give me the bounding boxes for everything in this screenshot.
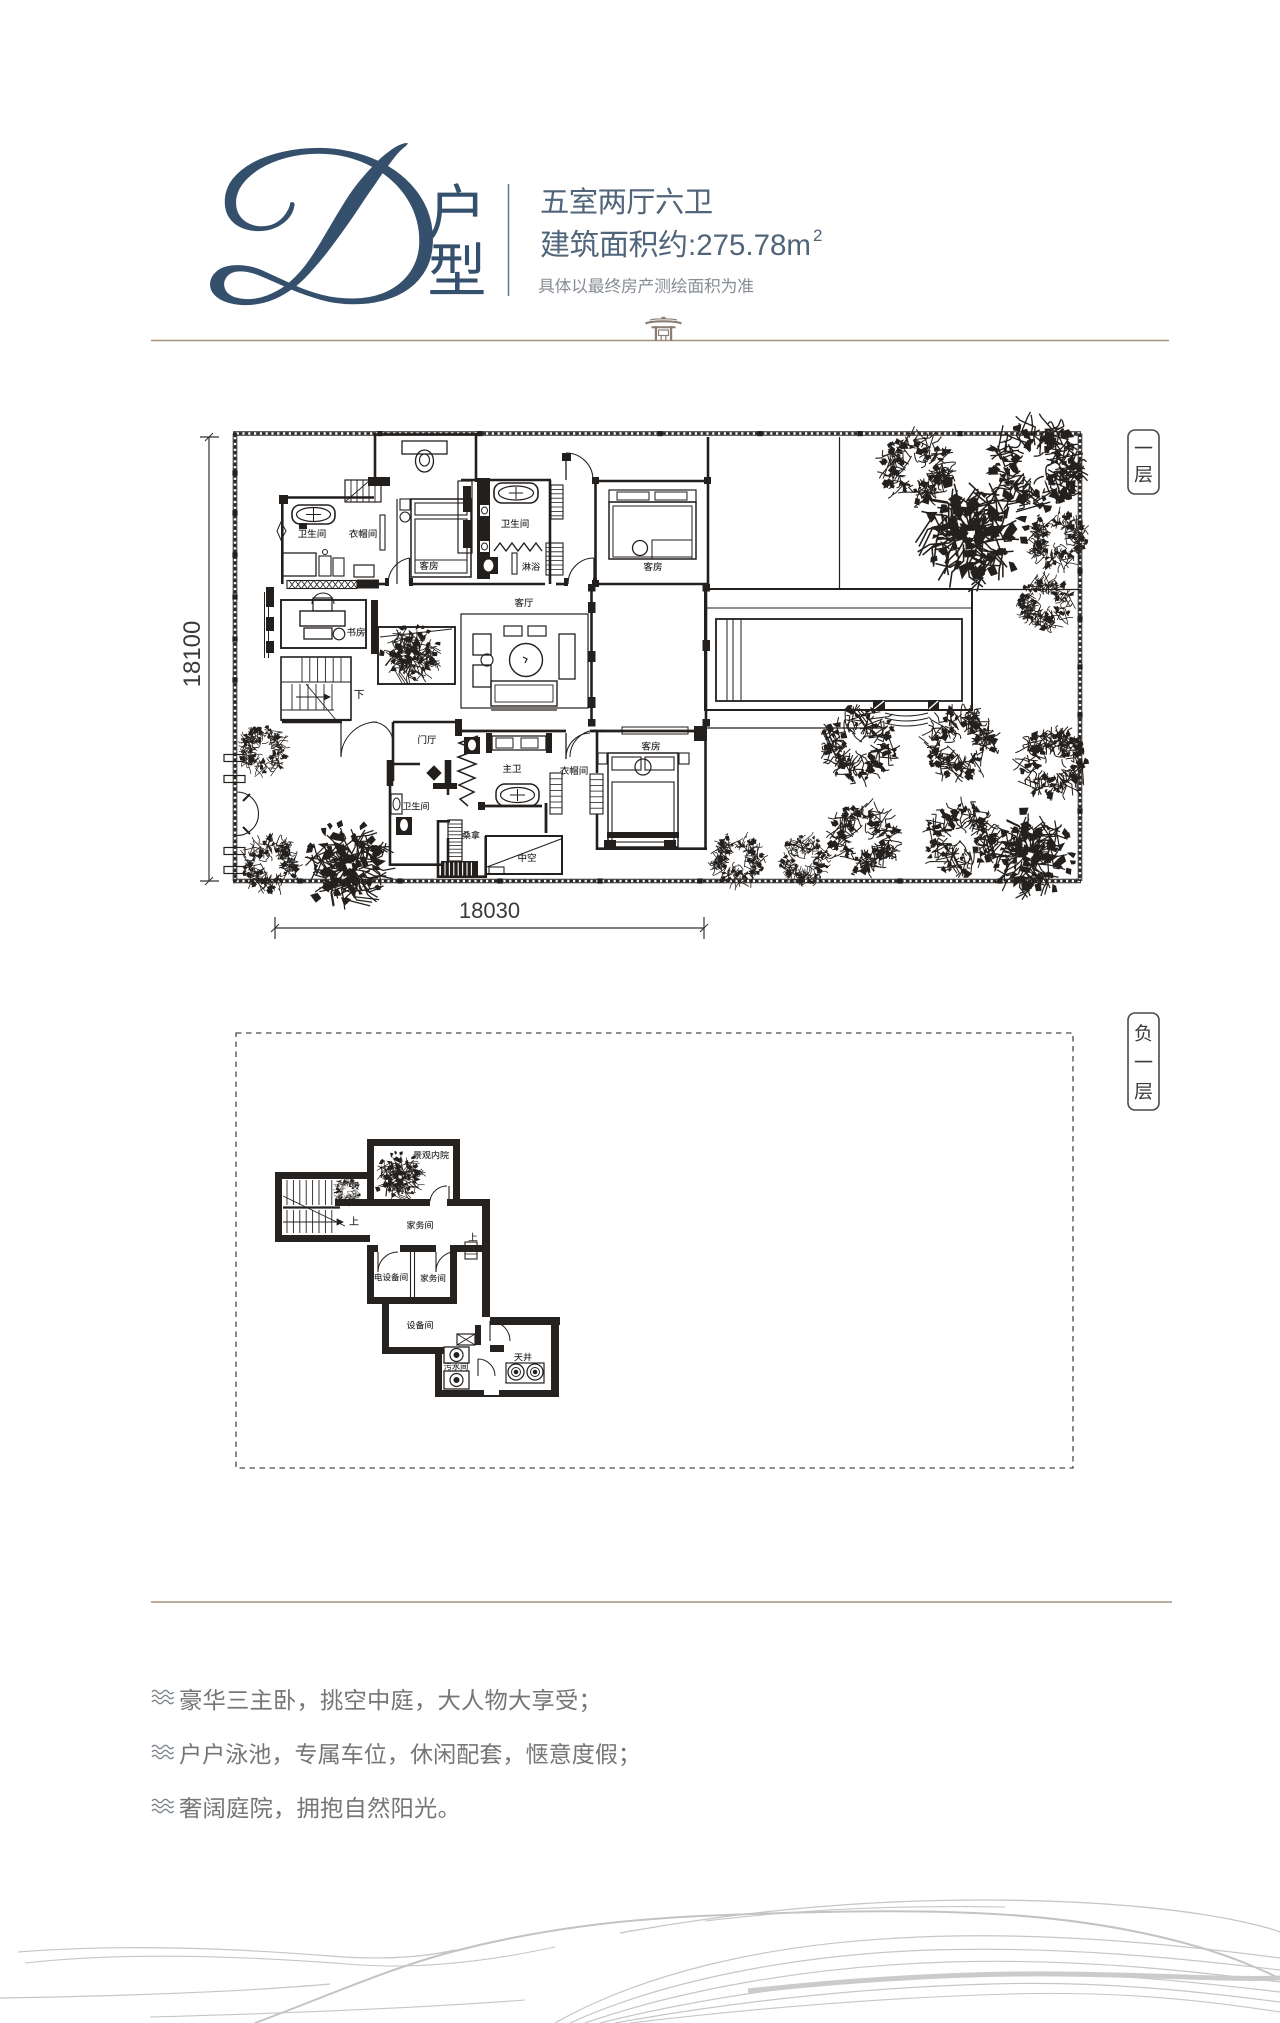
svg-text:2: 2 [813,226,822,245]
svg-text::275.78m: :275.78m [688,229,811,262]
svg-text:18030: 18030 [459,898,520,923]
svg-text:18100: 18100 [179,621,206,688]
